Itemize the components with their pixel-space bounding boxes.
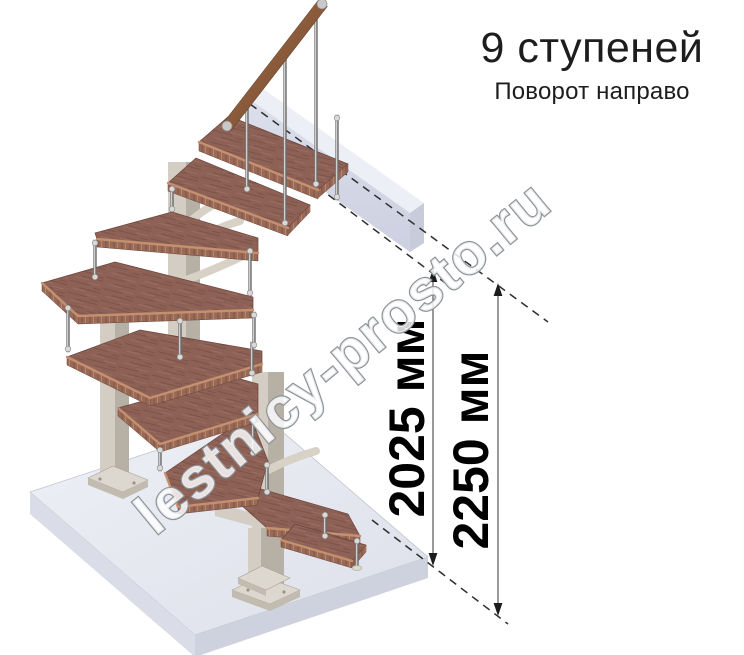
steps-count-title: 9 ступеней	[447, 26, 737, 71]
dimension-label-2250: 2250 мм	[443, 350, 499, 549]
tread-6	[42, 262, 253, 324]
dimension-2250: 2250 мм	[443, 283, 502, 616]
figure-caption: 9 ступеней Поворот направо	[447, 26, 737, 106]
staircase-diagram-page: 2025 мм 2250 мм lestnicy-prosto.ru 9 сту…	[0, 0, 744, 655]
turn-direction-subtitle: Поворот направо	[447, 78, 737, 106]
